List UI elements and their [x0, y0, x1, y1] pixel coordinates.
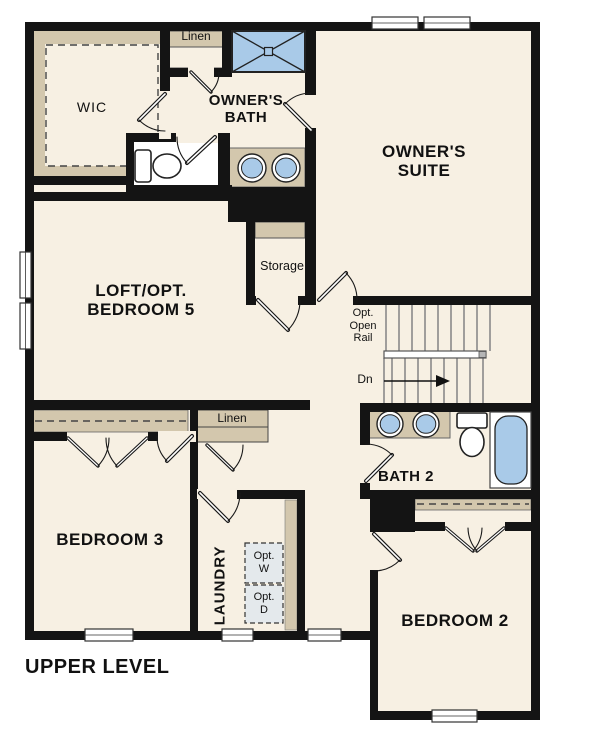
room-label-bedroom3: BEDROOM 3 — [30, 530, 190, 549]
annotation-down: Dn — [350, 373, 380, 386]
floor-plan: WIC Linen OWNER'S BATH OWNER'S SUITE LOF… — [0, 0, 607, 744]
room-label-owners-bath: OWNER'S BATH — [196, 93, 296, 127]
storage-shelf — [255, 222, 305, 238]
bathtub-icon — [490, 412, 531, 488]
bath2-toilet-icon — [457, 413, 487, 457]
room-label-bedroom2: BEDROOM 2 — [375, 611, 535, 630]
label-opt-dryer: Opt. D — [245, 591, 283, 616]
room-label-bath2: BATH 2 — [356, 469, 456, 486]
bath2-vanity — [368, 410, 450, 438]
bedroom2-closet — [415, 499, 531, 510]
room-label-linen-bottom: Linen — [200, 412, 264, 425]
room-label-loft: LOFT/OPT. BEDROOM 5 — [41, 281, 241, 319]
owners-bath-vanity — [228, 148, 305, 187]
room-label-storage: Storage — [252, 259, 312, 273]
page-title: UPPER LEVEL — [25, 656, 235, 678]
bedroom3-closet — [33, 410, 188, 432]
room-label-wic: WIC — [52, 100, 132, 116]
window — [424, 17, 470, 29]
window — [372, 17, 418, 29]
stair-rail — [384, 351, 486, 358]
window — [308, 629, 341, 641]
window — [20, 252, 31, 298]
annotation-opt-open-rail: Opt. Open Rail — [333, 307, 393, 345]
room-label-owners-suite: OWNER'S SUITE — [344, 142, 504, 180]
room-label-linen-top: Linen — [166, 30, 226, 43]
room-label-laundry: LAUNDRY — [213, 525, 230, 645]
window — [432, 710, 477, 722]
window — [20, 303, 31, 349]
label-opt-washer: Opt. W — [245, 550, 283, 575]
shower-icon — [232, 31, 305, 72]
window — [85, 629, 133, 641]
laundry-counter — [285, 500, 297, 630]
